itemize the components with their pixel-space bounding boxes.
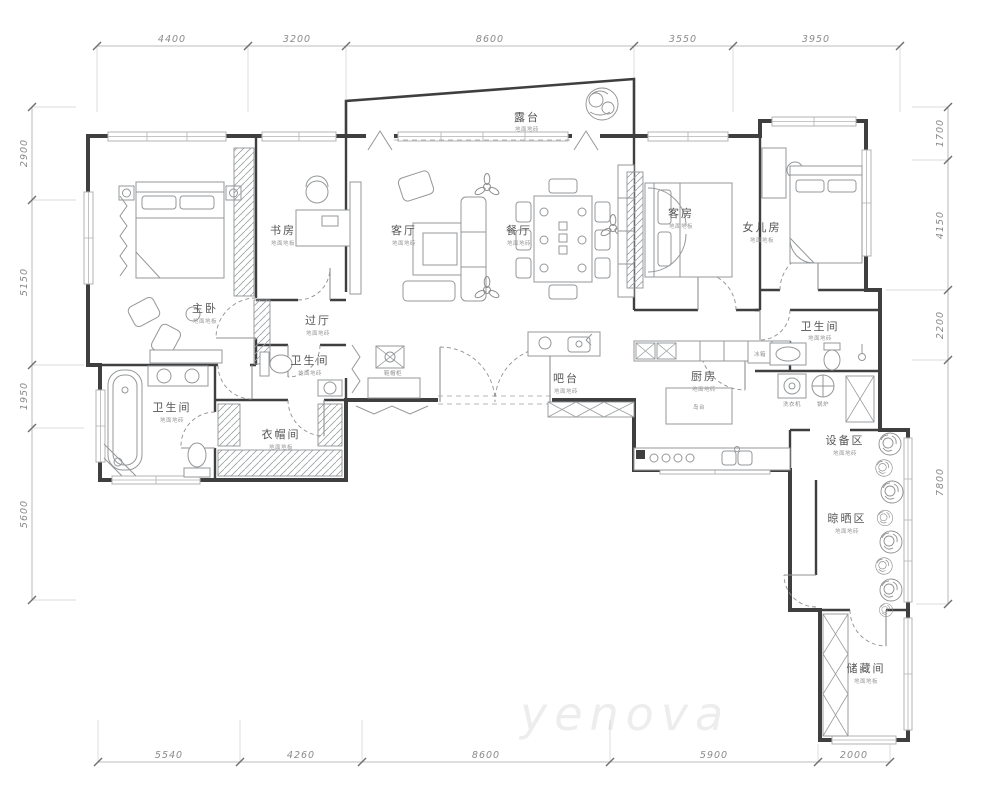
kitchen <box>634 341 790 470</box>
daughter-room <box>762 148 862 263</box>
door <box>698 272 736 310</box>
room-finish: 地面地板 <box>193 317 217 325</box>
room-finish: 地面地砖 <box>515 125 539 133</box>
room-label-guest-room: 客房 地面地板 <box>668 206 694 230</box>
shoe-cabinet-label: 鞋帽柜 <box>384 369 402 377</box>
wardrobe <box>234 148 254 296</box>
bench <box>403 281 455 301</box>
room-finish: 地面地砖 <box>808 334 832 342</box>
entry-mat-zigzag <box>356 406 428 414</box>
coffee-table <box>413 223 467 275</box>
window <box>108 132 226 141</box>
island-label: 岛台 <box>693 403 705 411</box>
room-name: 厨房 <box>691 370 717 383</box>
door <box>218 365 252 399</box>
room-finish: 地面地板 <box>669 222 693 230</box>
room-name: 晾晒区 <box>828 511 867 525</box>
window <box>96 390 105 462</box>
room-name: 客房 <box>668 206 694 220</box>
shoe-rack-zigzag <box>352 345 360 393</box>
desk <box>762 148 786 198</box>
dim-top-1: 3200 <box>283 34 311 45</box>
wine-cabinet-strip <box>548 402 634 417</box>
floor-plan-page: yenova <box>0 0 1000 794</box>
window <box>84 192 93 284</box>
dim-left-3: 5600 <box>19 500 30 528</box>
room-finish: 地面地板 <box>271 239 295 247</box>
dim-top-3: 3550 <box>669 34 697 45</box>
door <box>298 268 330 300</box>
boiler-label: 锅炉 <box>817 400 829 408</box>
room-finish: 地面地砖 <box>507 239 531 247</box>
shoe-cabinet <box>368 378 420 398</box>
window <box>832 736 896 744</box>
master-lounge-chairs <box>126 296 200 358</box>
room-label-bar: 吧台 地面地砖 <box>553 371 579 395</box>
dresser <box>150 350 222 363</box>
master-bed <box>119 182 241 278</box>
terrace-tree <box>586 88 618 120</box>
room-finish: 地面地砖 <box>160 416 184 424</box>
drying-area-plants <box>876 433 903 617</box>
dim-top-4: 3950 <box>802 34 830 45</box>
dim-right-3: 7800 <box>935 468 946 496</box>
room-finish: 地面地板 <box>854 677 878 685</box>
study-desk <box>296 176 352 246</box>
floor-plan-drawing: yenova <box>0 0 1000 794</box>
room-name: 卫生间 <box>801 319 840 333</box>
living-room-set <box>350 170 500 301</box>
room-name: 客厅 <box>391 223 417 237</box>
bar-counter <box>528 332 600 356</box>
room-finish: 地面地板 <box>269 443 293 451</box>
tv-cabinet <box>350 182 361 294</box>
dimension-top: 4400 3200 8600 3550 3950 <box>93 34 904 112</box>
room-label-living-room: 客厅 地面地砖 <box>391 223 417 247</box>
room-label-bathroom-right: 卫生间 地面地砖 <box>801 319 840 342</box>
watermark-text: yenova <box>518 687 730 741</box>
room-name: 卫生间 <box>291 353 330 367</box>
room-name: 餐厅 <box>506 223 532 237</box>
dim-right-2: 2200 <box>935 311 946 339</box>
bathroom-left <box>104 366 210 477</box>
room-label-bathroom-left: 卫生间 地面地砖 <box>153 400 192 424</box>
room-name: 女儿房 <box>743 220 782 234</box>
room-label-bathroom-mid: 卫生间 地面地砖 <box>291 353 330 377</box>
room-finish: 地面地砖 <box>298 369 322 377</box>
storage-room <box>823 614 848 736</box>
window <box>904 438 912 602</box>
room-label-hallway: 过厅 地面地砖 <box>305 314 331 337</box>
room-finish: 地面地砖 <box>835 527 859 535</box>
room-name: 过厅 <box>305 314 331 327</box>
door <box>850 610 886 646</box>
room-label-drying-area: 晾晒区 地面地砖 <box>828 511 867 535</box>
guest-room <box>627 172 732 288</box>
room-finish: 地面地砖 <box>306 329 330 337</box>
room-label-cloakroom: 衣帽间 地面地板 <box>262 427 301 451</box>
room-label-study: 书房 地面地板 <box>270 224 296 247</box>
dim-bottom-1: 4260 <box>287 750 315 761</box>
washer-label: 洗衣机 <box>783 400 801 408</box>
room-name: 衣帽间 <box>262 427 301 441</box>
dim-bottom-3: 5900 <box>700 750 728 761</box>
door <box>760 310 790 340</box>
window <box>904 618 912 730</box>
room-name: 卫生间 <box>153 400 192 414</box>
wardrobe <box>627 172 643 288</box>
fridge-label: 冰箱 <box>754 350 766 358</box>
room-finish: 地面地砖 <box>392 239 416 247</box>
dim-bottom-0: 5540 <box>155 750 183 761</box>
door <box>216 298 256 338</box>
room-label-storage-room: 储藏间 地面地板 <box>847 661 886 685</box>
room-finish: 地面地板 <box>750 236 774 244</box>
sofa <box>461 197 486 301</box>
curtain-zigzag <box>120 196 127 276</box>
room-label-equipment-area: 设备区 地面地砖 <box>826 433 865 457</box>
furniture <box>104 88 903 736</box>
room-name: 储藏间 <box>847 661 886 675</box>
room-label-daughter-room: 女儿房 地面地板 <box>743 220 782 244</box>
room-name: 书房 <box>270 224 296 237</box>
room-label-kitchen: 厨房 地面地砖 <box>691 370 717 393</box>
dim-left-1: 5150 <box>19 268 30 296</box>
dining-set <box>516 165 634 299</box>
room-finish: 地面地砖 <box>692 385 716 393</box>
room-label-terrace: 露台 地面地砖 <box>514 110 540 133</box>
room-name: 设备区 <box>826 433 865 447</box>
room-name: 主卧 <box>192 302 218 315</box>
room-finish: 地面地砖 <box>554 387 578 395</box>
dim-left-2: 1950 <box>19 382 30 410</box>
deco-cabinet <box>376 346 404 368</box>
window <box>862 150 871 256</box>
room-finish: 地面地砖 <box>833 449 857 457</box>
terrace-wall <box>346 79 634 136</box>
dim-right-1: 4150 <box>935 211 946 239</box>
room-label-dining-room: 餐厅 地面地砖 <box>506 223 532 247</box>
stove-corner <box>636 450 645 459</box>
armchair <box>397 170 435 203</box>
dim-top-0: 4400 <box>158 34 186 45</box>
bathroom-right <box>770 343 866 370</box>
dim-top-2: 8600 <box>476 34 504 45</box>
dim-right-0: 1700 <box>935 119 946 147</box>
room-name: 吧台 <box>553 371 579 385</box>
room-name: 露台 <box>514 110 540 124</box>
room-label-master-bedroom: 主卧 地面地板 <box>192 302 218 325</box>
dimension-bottom: 5540 4260 8600 5900 2000 <box>94 720 894 766</box>
dim-bottom-2: 8600 <box>472 750 500 761</box>
window <box>648 132 728 141</box>
dim-bottom-4: 2000 <box>840 750 868 761</box>
utility-area <box>778 374 874 422</box>
window <box>772 117 856 126</box>
window <box>262 132 336 141</box>
dimension-left: 2900 5150 1950 5600 <box>19 103 84 604</box>
dim-left-0: 2900 <box>19 139 30 167</box>
